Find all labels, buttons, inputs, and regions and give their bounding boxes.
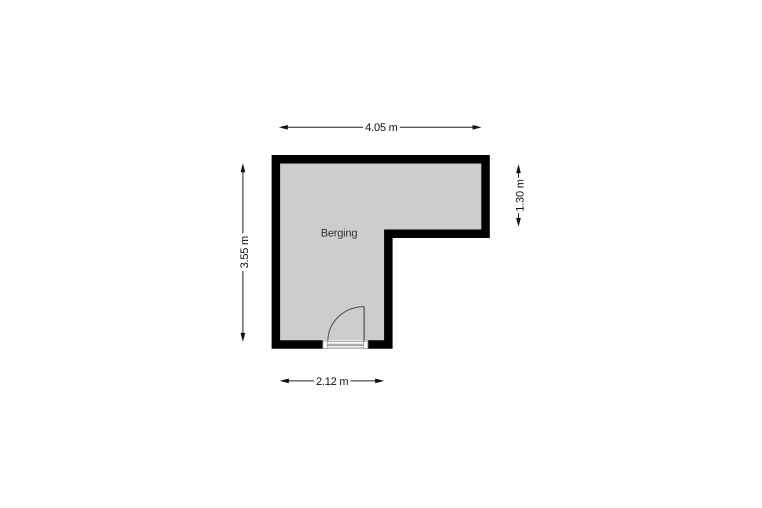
svg-text:3.55 m: 3.55 m <box>239 236 251 268</box>
svg-text:2.12 m: 2.12 m <box>316 376 348 388</box>
svg-text:Berging: Berging <box>321 228 358 240</box>
svg-text:4.05 m: 4.05 m <box>365 122 397 134</box>
svg-text:1.30 m: 1.30 m <box>515 179 527 211</box>
